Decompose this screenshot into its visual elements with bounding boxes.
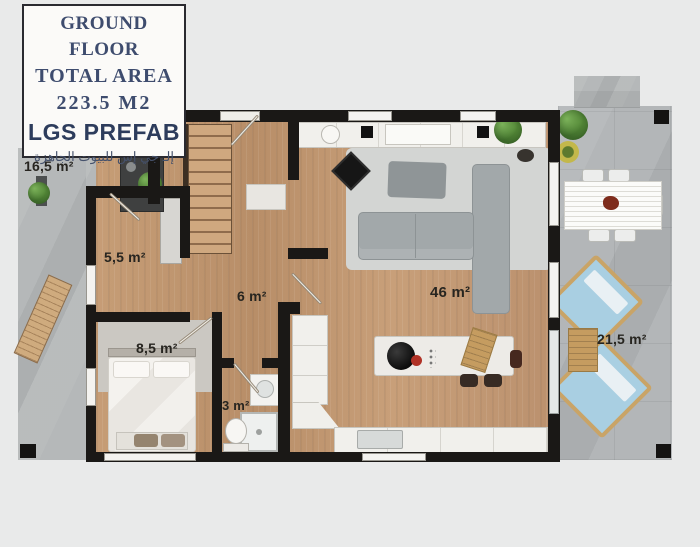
toilet-tank xyxy=(223,443,249,452)
decor-tray xyxy=(385,124,451,145)
patio-corner-post xyxy=(20,444,36,458)
bath-sink-basin xyxy=(256,380,274,398)
label-living-kitchen: 46 m² xyxy=(430,284,470,301)
bed-pillow-1 xyxy=(113,361,150,378)
wall-left xyxy=(86,186,96,462)
brand-logo-text: LGS PREFAB xyxy=(24,117,184,147)
stairs xyxy=(188,124,232,254)
window-top-2 xyxy=(460,111,496,121)
wall-corridor-stub xyxy=(288,248,328,259)
bench-pillow-2 xyxy=(161,434,185,447)
sofa-back-cushion xyxy=(387,161,446,199)
wall-bedroom-bath xyxy=(212,312,222,452)
table-centerpiece xyxy=(603,196,619,210)
shower-drain xyxy=(256,429,262,435)
decor-bowl xyxy=(517,149,534,162)
terrace-side-table xyxy=(568,328,598,372)
terrace-pot-plant xyxy=(557,141,579,163)
kitchen-sink xyxy=(357,430,403,449)
window-right-1 xyxy=(549,162,559,226)
terrace-corner-post-bottom xyxy=(656,444,671,458)
cooktop xyxy=(387,342,415,370)
window-top-1 xyxy=(348,111,392,121)
label-bedroom: 8,5 m² xyxy=(136,340,178,356)
wall-hall-top xyxy=(86,186,190,198)
window-right-2 xyxy=(549,262,559,318)
decor-candle-2 xyxy=(477,126,489,138)
terrace-steps xyxy=(574,76,640,108)
dining-chair-4 xyxy=(614,229,636,242)
total-area-value: 223.5 M2 xyxy=(24,90,184,117)
wall-bathroom-top-a xyxy=(222,358,234,368)
label-terrace: 21,5 m² xyxy=(597,331,647,347)
wall-corridor-upper xyxy=(288,110,299,180)
bar-stool-1 xyxy=(460,374,478,387)
kitchen-cabinet-column xyxy=(292,315,328,405)
toilet-bowl xyxy=(225,418,247,444)
bar-stool-2 xyxy=(484,374,502,387)
bar-stool-3 xyxy=(510,350,522,368)
window-left-2 xyxy=(86,368,96,406)
bench-pillow-1 xyxy=(134,434,158,447)
brand-logo-arabic: إلـ جي إس للبيوت الجاهزة xyxy=(24,147,184,167)
floor-title: GROUND FLOOR xyxy=(24,11,184,63)
decor-candle-1 xyxy=(361,126,373,138)
dining-chair-3 xyxy=(588,229,610,242)
terrace-plant xyxy=(558,110,588,140)
terrace-corner-post-top xyxy=(654,110,669,124)
label-bathroom: 3 m² xyxy=(222,398,250,413)
window-bottom-bedroom xyxy=(104,453,196,461)
wall-bedroom-top xyxy=(86,312,190,322)
window-left-1 xyxy=(86,265,96,305)
title-card: GROUND FLOOR TOTAL AREA 223.5 M2 LGS PRE… xyxy=(22,4,186,158)
wall-stairs-side xyxy=(180,196,190,258)
decor-plate xyxy=(321,125,340,144)
island-controls xyxy=(428,348,436,368)
floor-plan: 16,5 m² 5,5 m² 6 m² 46 m² 8,5 m² 3 m² 21… xyxy=(0,0,700,547)
sofa-seam xyxy=(415,214,416,258)
patio-plant xyxy=(28,182,50,204)
wall-bathroom-top-b xyxy=(262,358,290,368)
bed-pillow-2 xyxy=(153,361,190,378)
entry-mat xyxy=(246,184,286,210)
sofa-seat xyxy=(358,212,474,260)
label-hall: 5,5 m² xyxy=(104,249,146,265)
wall-bathroom-right xyxy=(278,308,290,460)
window-bottom-kitchen xyxy=(362,453,426,461)
terrace-sliding-door xyxy=(549,330,559,414)
label-corridor: 6 m² xyxy=(237,288,267,304)
total-area-label: TOTAL AREA xyxy=(24,63,184,90)
sofa-chaise xyxy=(472,164,510,314)
kettle-red xyxy=(411,355,422,366)
